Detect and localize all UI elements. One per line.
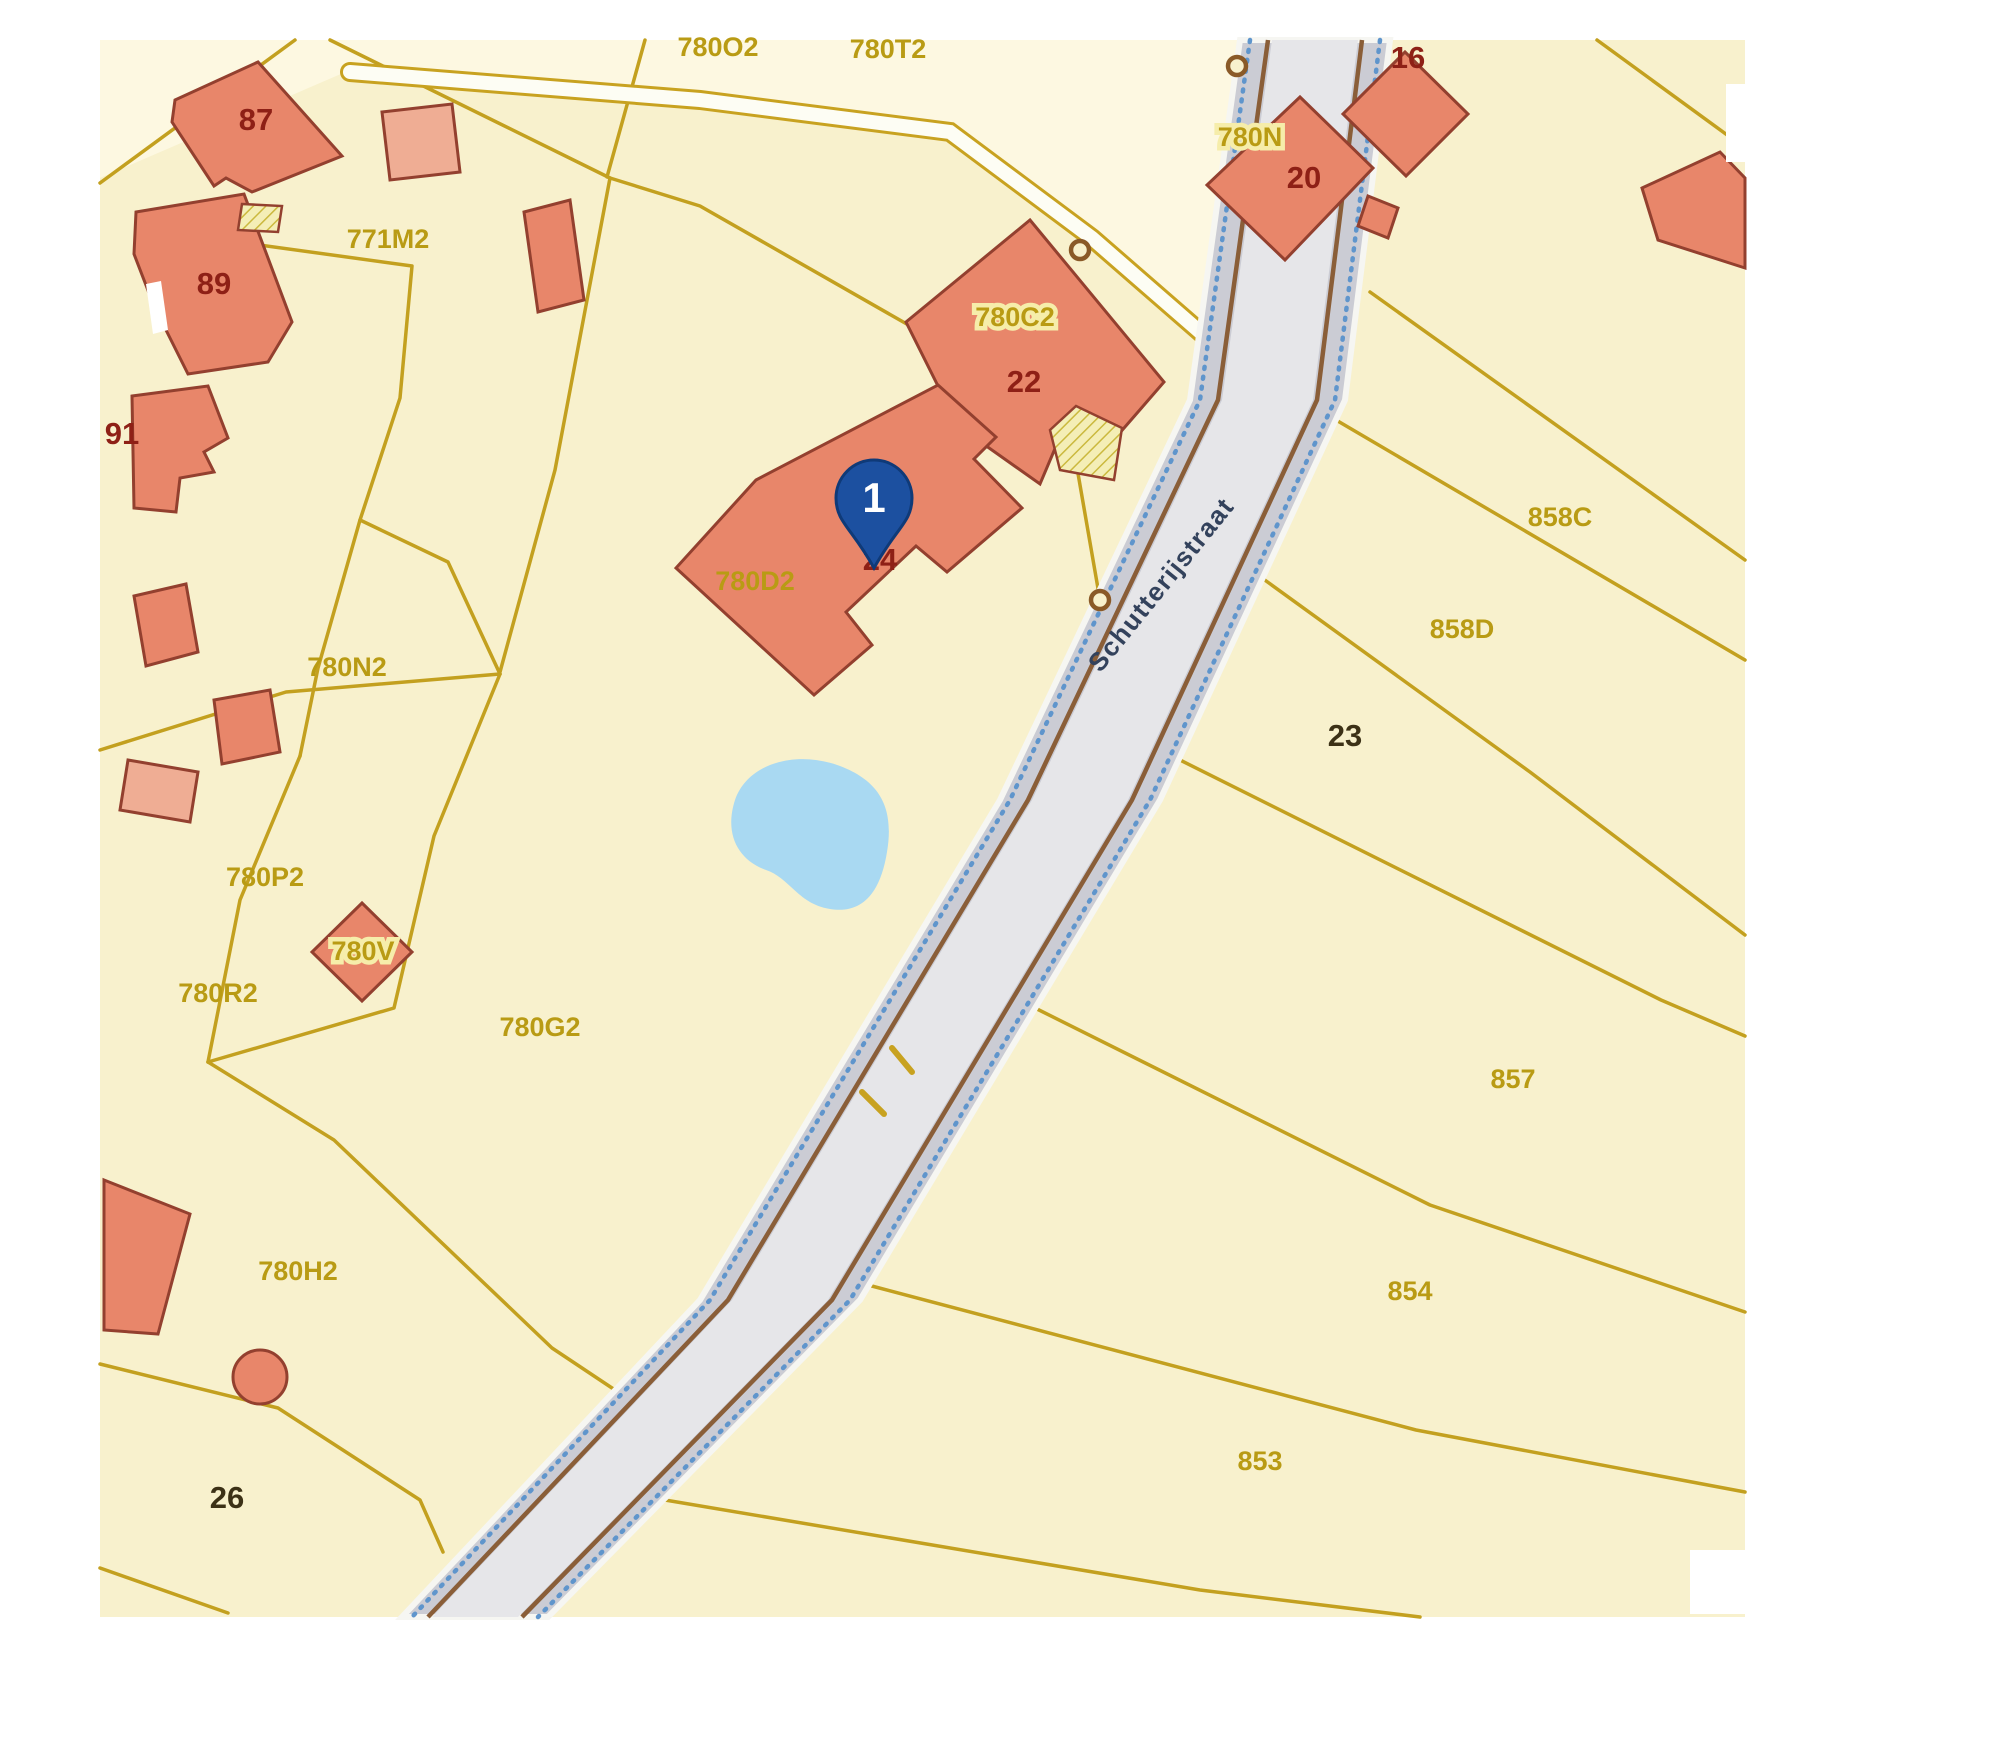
parcel-label-780T2: 780T2 [850,34,927,64]
boundary-node [1091,591,1109,609]
building-left-square [214,690,280,764]
building-small-top [382,104,460,180]
house-number-91: 91 [105,416,139,451]
house-number-22: 22 [1007,364,1041,399]
parcel-label-780G2: 780G2 [499,1012,580,1042]
map-edge-notch-top [1726,84,1748,162]
building-89-annex-hatched [238,204,282,232]
house-number-87: 87 [239,102,273,137]
building-left-a [134,584,198,666]
parcel-label-780D2: 780D2 [715,566,795,596]
parcel-label-854: 854 [1387,1276,1432,1306]
parcel-label-780N2: 780N2 [307,652,387,682]
parcel-label-780R2: 780R2 [178,978,258,1008]
parcel-label-858C: 858C [1528,502,1593,532]
parcel-label-780N: 780N [1218,122,1283,152]
parcel-label-780C2: 780C2 [975,302,1055,332]
building-left-b [120,760,198,822]
parcel-label-780V: 780V [331,936,394,966]
cadastral-map-page: 780O2780T2771M2780N780C2780D2780N2780P27… [0,0,2000,1746]
cadastral-map: 780O2780T2771M2780N780C2780D2780N2780P27… [0,0,2000,1746]
parcel-label-857: 857 [1490,1064,1535,1094]
map-ground [100,40,1745,1617]
parcel-label-780O2: 780O2 [677,32,758,62]
boundary-node [1228,57,1246,75]
parcel-label-780P2: 780P2 [226,862,304,892]
map-edge-notch-bottom [1690,1550,1746,1614]
building-round [233,1350,287,1404]
parcel-label-853: 853 [1237,1446,1282,1476]
house-number-26: 26 [210,1480,244,1515]
parcel-label-771M2: 771M2 [347,224,430,254]
map-marker-label: 1 [862,474,885,521]
parcel-label-858D: 858D [1430,614,1495,644]
house-number-16: 16 [1391,40,1425,75]
house-number-20: 20 [1287,160,1321,195]
parcel-label-780H2: 780H2 [258,1256,338,1286]
house-number-23: 23 [1328,718,1362,753]
boundary-node [1071,241,1089,259]
house-number-89: 89 [197,266,231,301]
